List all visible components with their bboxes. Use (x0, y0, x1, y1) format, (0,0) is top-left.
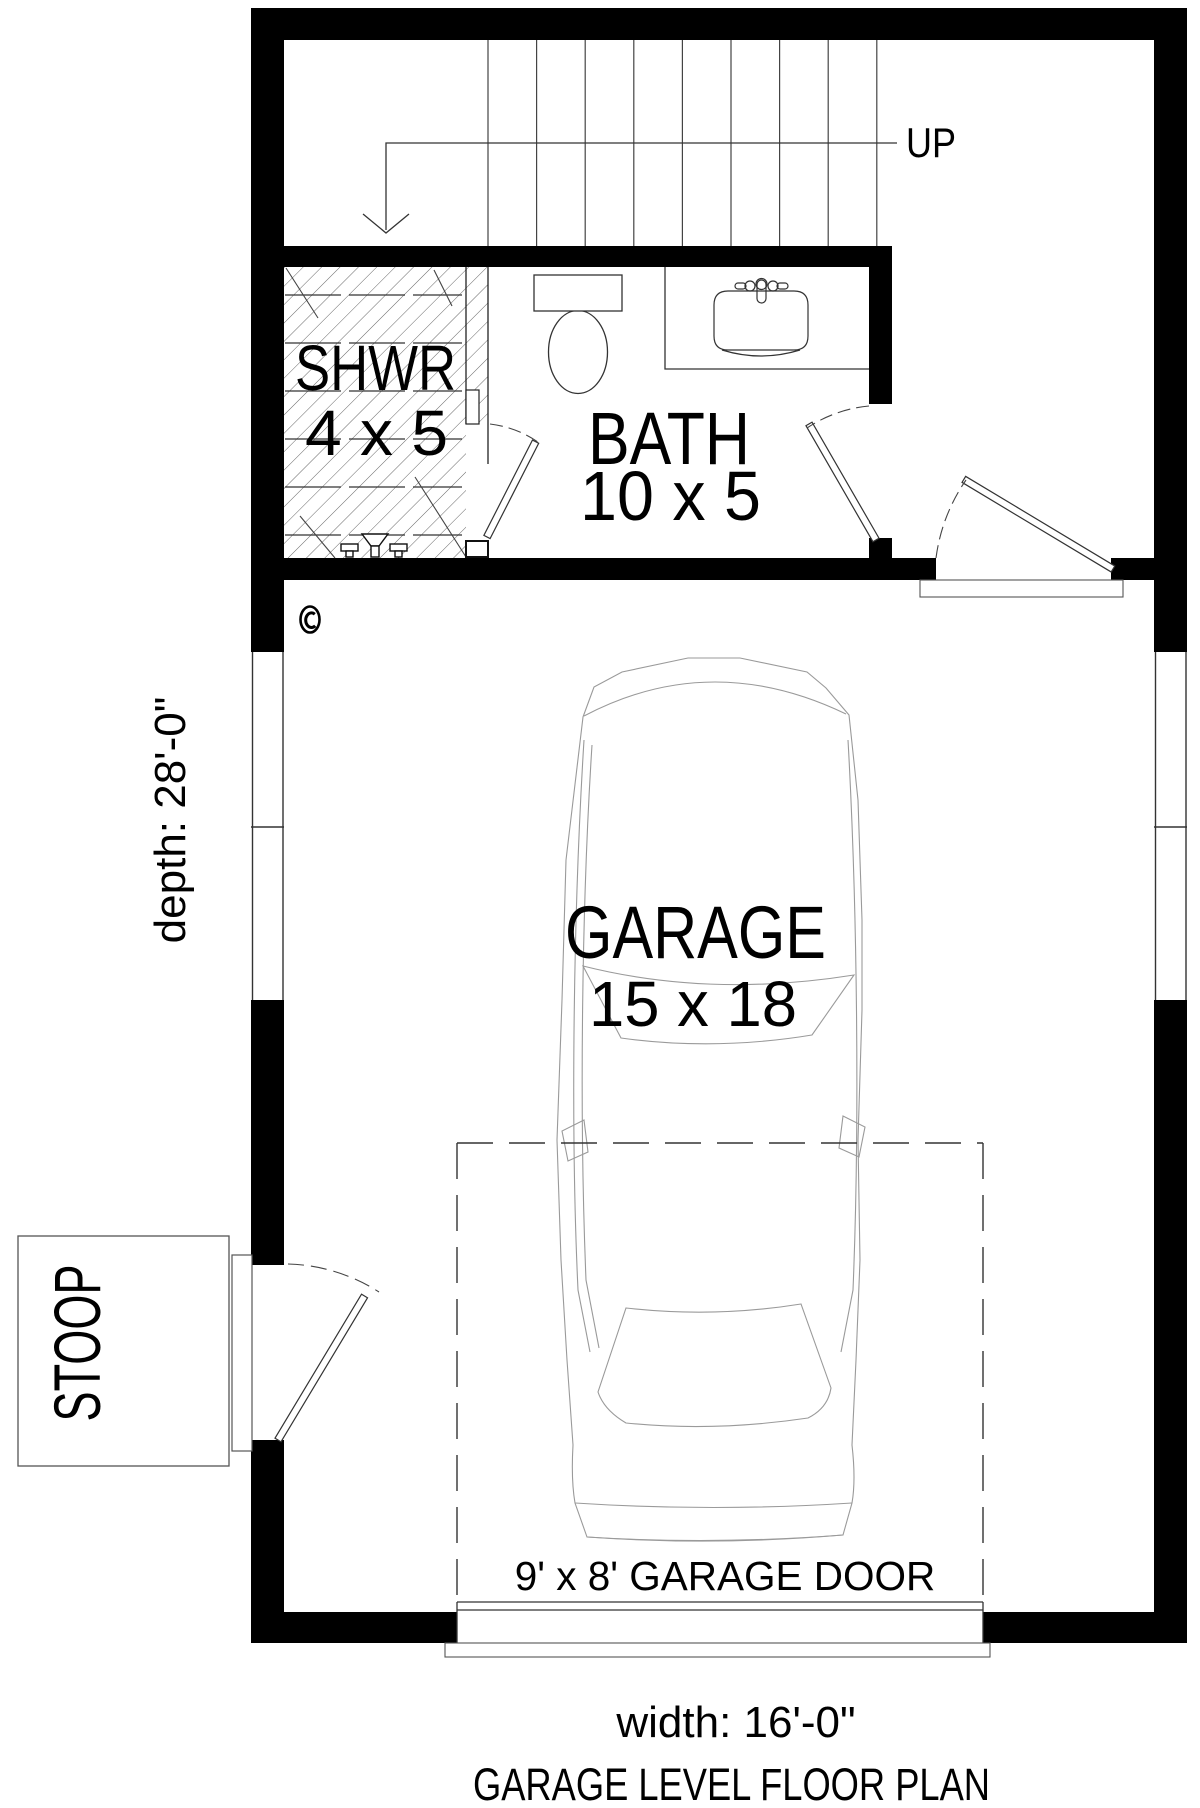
svg-text:9' x 8' GARAGE DOOR: 9' x 8' GARAGE DOOR (515, 1553, 936, 1599)
svg-text:10 x 5: 10 x 5 (580, 457, 761, 535)
svg-text:SHWR: SHWR (295, 332, 456, 404)
svg-text:width: 16'-0": width: 16'-0" (615, 1698, 855, 1747)
svg-text:UP: UP (906, 119, 956, 166)
svg-text:STOOP: STOOP (40, 1265, 114, 1422)
svg-text:depth: 28'-0": depth: 28'-0" (146, 697, 195, 944)
svg-text:GARAGE LEVEL FLOOR PLAN: GARAGE LEVEL FLOOR PLAN (473, 1759, 990, 1808)
svg-text:GARAGE: GARAGE (565, 891, 826, 974)
svg-text:15 x 18: 15 x 18 (589, 968, 797, 1040)
svg-text:4 x 5: 4 x 5 (305, 397, 448, 469)
